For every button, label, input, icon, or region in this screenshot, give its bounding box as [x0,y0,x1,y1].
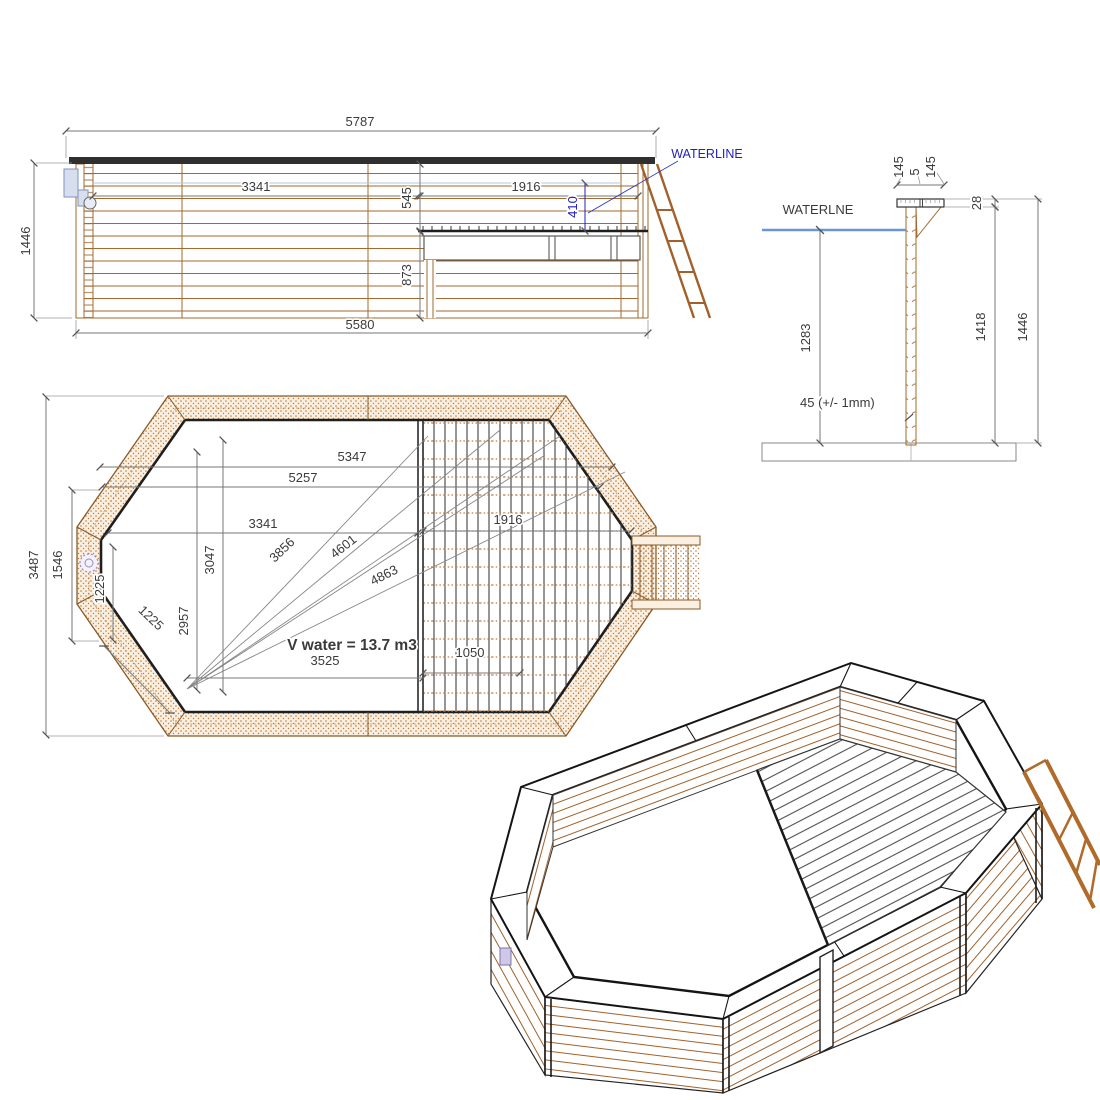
section-view: 145 5 145 28 WATERLNE 1283 1418 1446 45 … [762,156,1042,461]
dim-1446-elev: 1446 [18,227,33,256]
section-extension-lines [897,173,1042,443]
dim-2957: 2957 [176,607,191,636]
dim-145-a: 145 [891,156,906,178]
water-volume-label: V water = 13.7 m3 [287,637,417,654]
cap-brace [916,207,941,237]
dim-5347: 5347 [338,449,367,464]
plan-view: 3487 1546 5347 5257 3341 1916 3856 4601 … [26,396,700,736]
dim-3525: 3525 [311,653,340,668]
dim-28: 28 [969,196,984,210]
pool-technical-drawing: 5787 1446 3341 545 1916 410 873 5580 WAT… [0,0,1100,1100]
dim-1446-sect: 1446 [1015,313,1030,342]
plan-ladder-rail-bottom [632,600,700,609]
dim-873: 873 [399,264,414,286]
dim-3341-plan: 3341 [249,516,278,531]
dim-1225-a: 1225 [92,575,107,604]
dim-1225-b: 1225 [136,602,167,633]
elevation-top-cap [69,157,655,164]
dim-1546: 1546 [50,551,65,580]
dim-45mm: 45 (+/- 1mm) [800,395,875,410]
isometric-view [491,663,1100,1093]
dim-3487: 3487 [26,551,41,580]
ground-slab [762,443,1016,461]
coping-cap [897,199,944,207]
dim-1050: 1050 [456,645,485,660]
dim-5580: 5580 [346,317,375,332]
section-waterline-label: WATERLNE [783,202,854,217]
elevation-view: 5787 1446 3341 545 1916 410 873 5580 WAT… [18,114,743,339]
plan-ladder-deck [632,545,700,600]
dim-4863: 4863 [368,562,401,588]
plan-skimmer [80,554,98,572]
dim-1916-plan: 1916 [494,512,523,527]
drawing-canvas: 5787 1446 3341 545 1916 410 873 5580 WAT… [0,0,1100,1100]
skimmer-inlet [84,197,96,209]
dim-145-b: 145 [923,156,938,178]
section-wall-hatch [906,200,916,445]
iso-skimmer [500,948,511,965]
deck-post-gap [424,260,436,318]
dim-410: 410 [565,196,580,218]
bench-frame [424,236,640,260]
iso-divider-post [820,950,833,1053]
skimmer-box [64,169,78,197]
dim-5257: 5257 [289,470,318,485]
elevation-ladder-rungs [657,210,705,303]
dim-1916-elev: 1916 [512,179,541,194]
dim-545: 545 [399,187,414,209]
waterline-label: WATERLINE [671,147,743,161]
dim-5: 5 [907,168,922,175]
dim-1418: 1418 [973,313,988,342]
plan-deck-divider [418,421,423,711]
plan-ladder-rail-top [632,536,700,545]
elevation-corner-stagger [84,164,93,318]
dim-1283: 1283 [798,324,813,353]
dim-5787: 5787 [346,114,375,129]
dim-3341-elev: 3341 [242,179,271,194]
dim-3047: 3047 [202,546,217,575]
dim-4601: 4601 [327,532,359,562]
dim-3856: 3856 [266,534,297,565]
